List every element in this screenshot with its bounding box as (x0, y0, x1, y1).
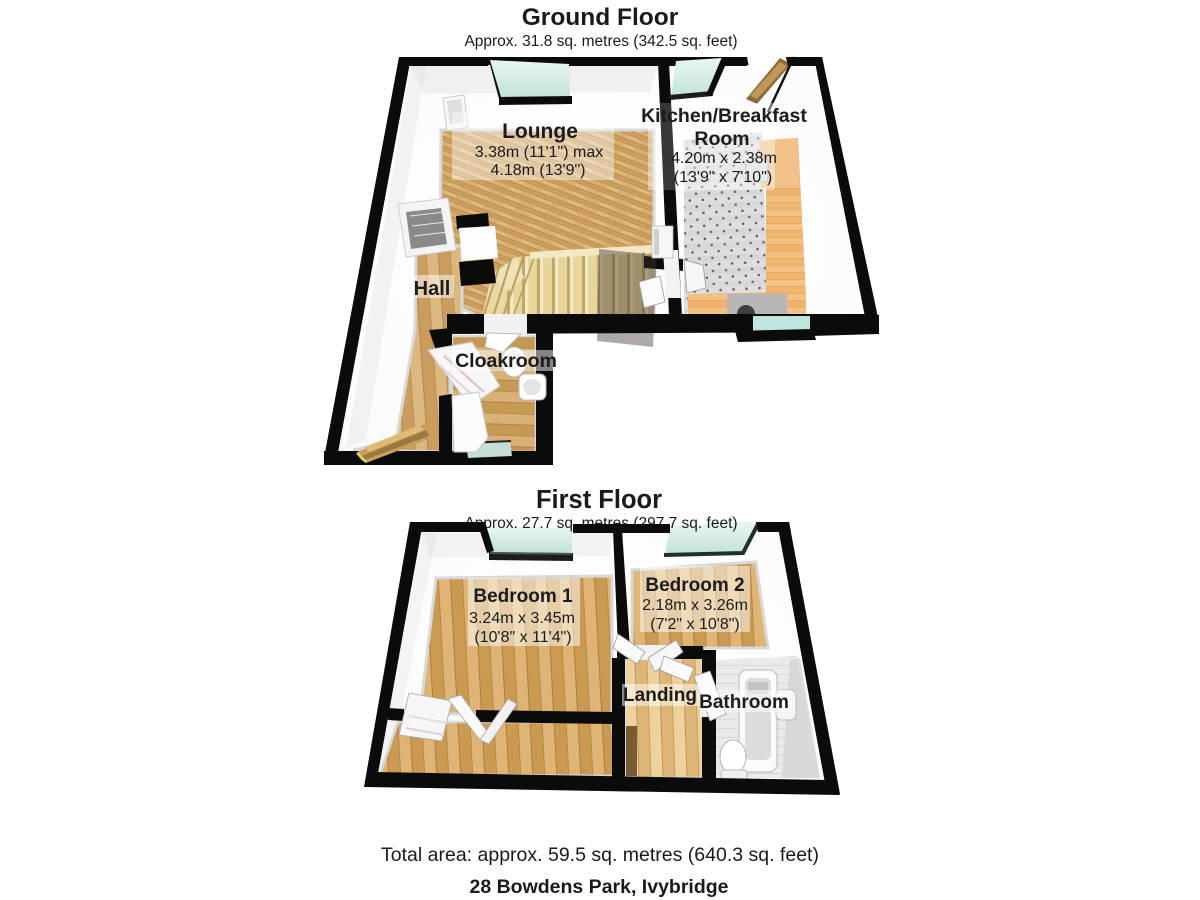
svg-text:Lounge: Lounge (502, 120, 578, 143)
svg-text:Cloakroom: Cloakroom (455, 350, 557, 372)
svg-text:4.20m x 2.38m: 4.20m x 2.38m (671, 150, 777, 167)
svg-text:Kitchen/Breakfast: Kitchen/Breakfast (641, 105, 807, 127)
svg-text:3.38m (11'1") max: 3.38m (11'1") max (475, 144, 603, 161)
svg-text:First Floor: First Floor (536, 486, 662, 514)
svg-text:Bedroom 1: Bedroom 1 (473, 586, 573, 607)
svg-text:(13'9" x 7'10"): (13'9" x 7'10") (674, 169, 772, 186)
svg-text:Landing: Landing (623, 685, 697, 706)
svg-text:4.18m (13'9"): 4.18m (13'9") (491, 162, 586, 179)
svg-text:28 Bowdens Park, Ivybridge: 28 Bowdens Park, Ivybridge (469, 876, 728, 898)
svg-text:(7'2" x 10'8"): (7'2" x 10'8") (650, 616, 740, 633)
svg-text:Hall: Hall (414, 278, 451, 300)
svg-text:Total area: approx. 59.5 sq.: Total area: approx. 59.5 sq. metres (640… (381, 844, 819, 866)
svg-text:2.18m x 3.26m: 2.18m x 3.26m (642, 597, 748, 614)
svg-text:3.24m x 3.45m: 3.24m x 3.45m (469, 610, 575, 627)
svg-text:Ground Floor: Ground Floor (522, 4, 679, 31)
svg-text:(10'8" x 11'4"): (10'8" x 11'4") (474, 629, 571, 646)
svg-text:Bedroom 2: Bedroom 2 (645, 575, 744, 596)
svg-text:Room: Room (694, 128, 749, 150)
svg-text:Bathroom: Bathroom (699, 692, 789, 713)
svg-text:Approx. 31.8 sq. metres (342.: Approx. 31.8 sq. metres (342.5 sq. feet) (464, 33, 737, 50)
